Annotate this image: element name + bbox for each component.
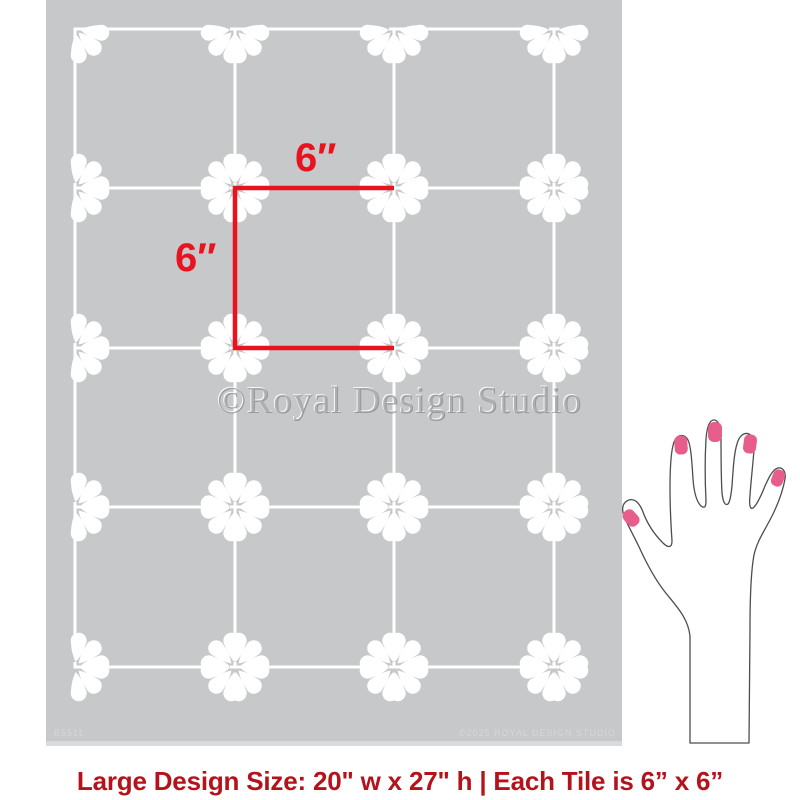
tile-width-dimension-label: 6″ xyxy=(295,138,336,178)
design-size-caption: Large Design Size: 20" w x 27" h | Each … xyxy=(0,766,800,797)
stencil-sheet: B551L ©2025 ROYAL DESIGN STUDIO xyxy=(46,0,622,746)
stencil-copyright-label: ©2025 ROYAL DESIGN STUDIO xyxy=(459,728,616,738)
middle-nail xyxy=(708,422,722,442)
index-nail xyxy=(674,435,688,455)
stencil-tile-pattern xyxy=(46,0,622,746)
hand-scale-illustration xyxy=(620,412,800,746)
tile-height-dimension-label: 6″ xyxy=(175,238,216,278)
hand-outline xyxy=(623,420,786,743)
stencil-sku-label: B551L xyxy=(54,728,85,738)
